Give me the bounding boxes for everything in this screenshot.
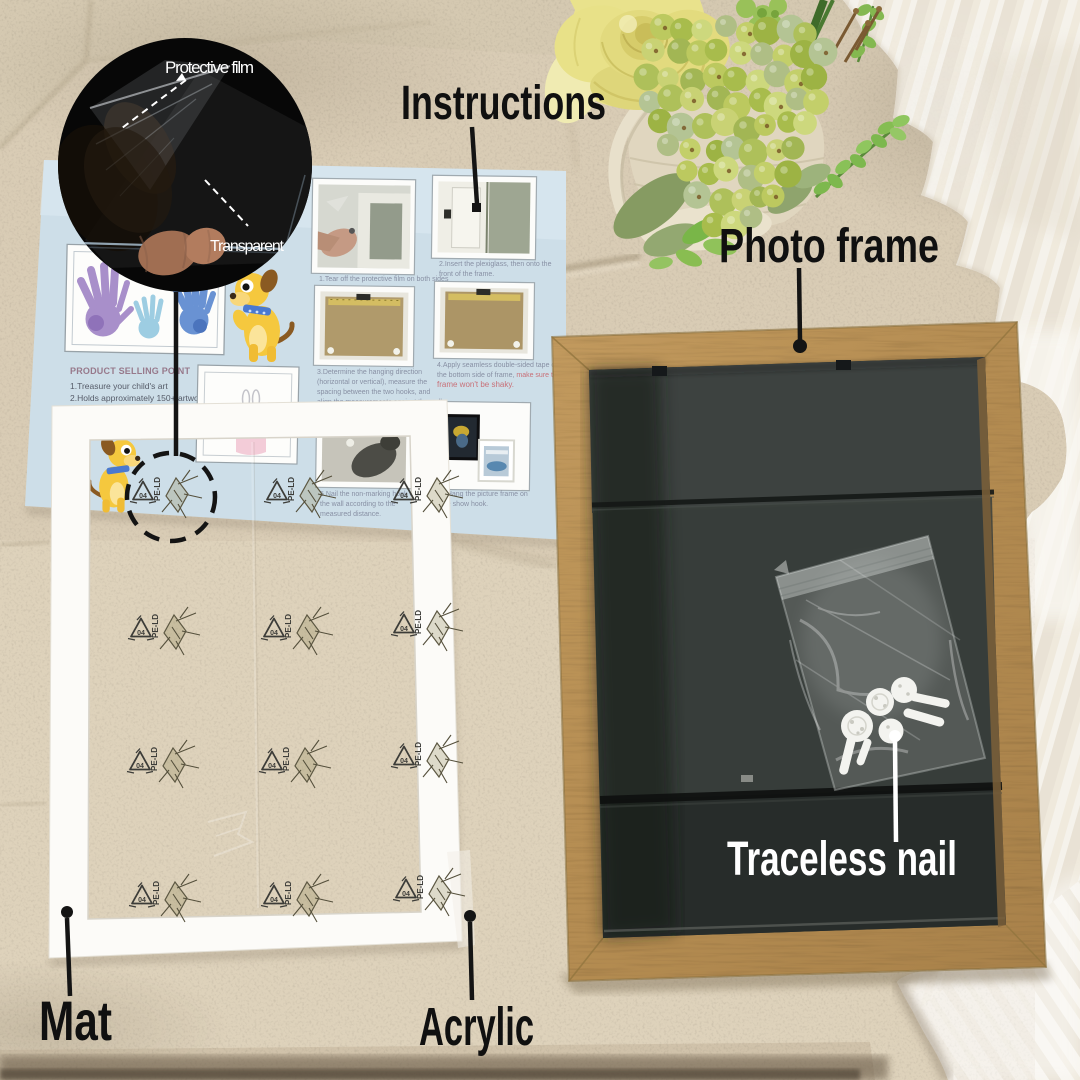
svg-text:3.Determine the hanging direct: 3.Determine the hanging direction (317, 369, 422, 376)
svg-text:6.Hang the picture frame on: 6.Hang the picture frame on (441, 491, 528, 498)
svg-text:1.Tear off the protective film: 1.Tear off the protective film on both s… (319, 276, 449, 283)
svg-text:2.Holds approximately 150+ art: 2.Holds approximately 150+ artworks (70, 393, 210, 403)
svg-text:PRODUCT SELLING POINT: PRODUCT SELLING POINT (70, 366, 191, 376)
svg-text:frame won't be shaky.: frame won't be shaky. (437, 380, 514, 389)
svg-text:Acrylic: Acrylic (419, 997, 534, 1057)
svg-text:Instructions: Instructions (401, 77, 606, 130)
svg-text:Transparent: Transparent (210, 238, 285, 255)
svg-text:the bottom side of frame, make: the bottom side of frame, make sure the (437, 372, 561, 379)
svg-text:measured distance.: measured distance. (320, 511, 381, 518)
svg-text:4.Apply seamless double-sided: 4.Apply seamless double-sided tape on (437, 362, 559, 369)
svg-text:2.Insert the plexiglass, then: 2.Insert the plexiglass, then onto the (439, 261, 552, 268)
svg-text:(horizontal or vertical), meas: (horizontal or vertical), measure the (317, 379, 427, 386)
svg-text:Protective film: Protective film (165, 58, 254, 77)
svg-text:Photo frame: Photo frame (719, 220, 939, 273)
svg-text:front of the frame.: front of the frame. (439, 271, 494, 278)
svg-text:the wall according to the: the wall according to the (320, 501, 396, 508)
svg-text:Traceless nail: Traceless nail (727, 833, 957, 886)
svg-text:Mat: Mat (39, 989, 112, 1052)
svg-text:1.Treasure your child's art: 1.Treasure your child's art (70, 381, 168, 391)
svg-text:spacing between the two hooks,: spacing between the two hooks, and (317, 389, 430, 396)
